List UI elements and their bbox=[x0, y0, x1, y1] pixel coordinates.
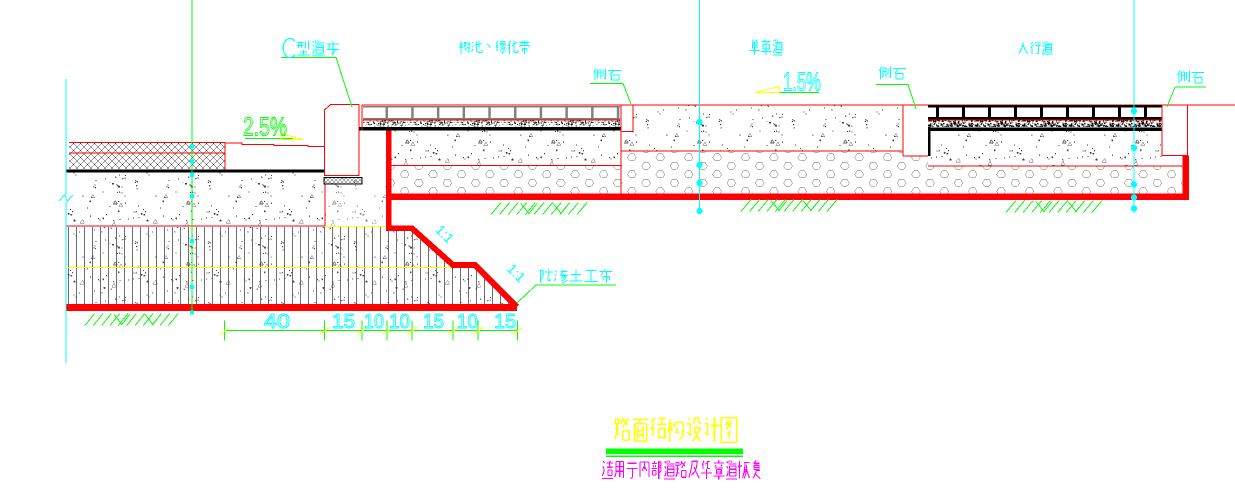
svg-text:1.5%: 1.5% bbox=[783, 67, 821, 97]
svg-text:2.5%: 2.5% bbox=[243, 112, 287, 142]
svg-text:40: 40 bbox=[264, 310, 290, 333]
svg-text:10: 10 bbox=[389, 310, 410, 333]
svg-text:1:1: 1:1 bbox=[504, 260, 529, 285]
svg-text:1:1: 1:1 bbox=[432, 221, 457, 246]
svg-text:10: 10 bbox=[457, 310, 478, 333]
svg-text:10: 10 bbox=[364, 310, 384, 333]
svg-text:15: 15 bbox=[332, 310, 355, 333]
svg-text:15: 15 bbox=[494, 310, 516, 333]
svg-text:15: 15 bbox=[423, 310, 444, 333]
